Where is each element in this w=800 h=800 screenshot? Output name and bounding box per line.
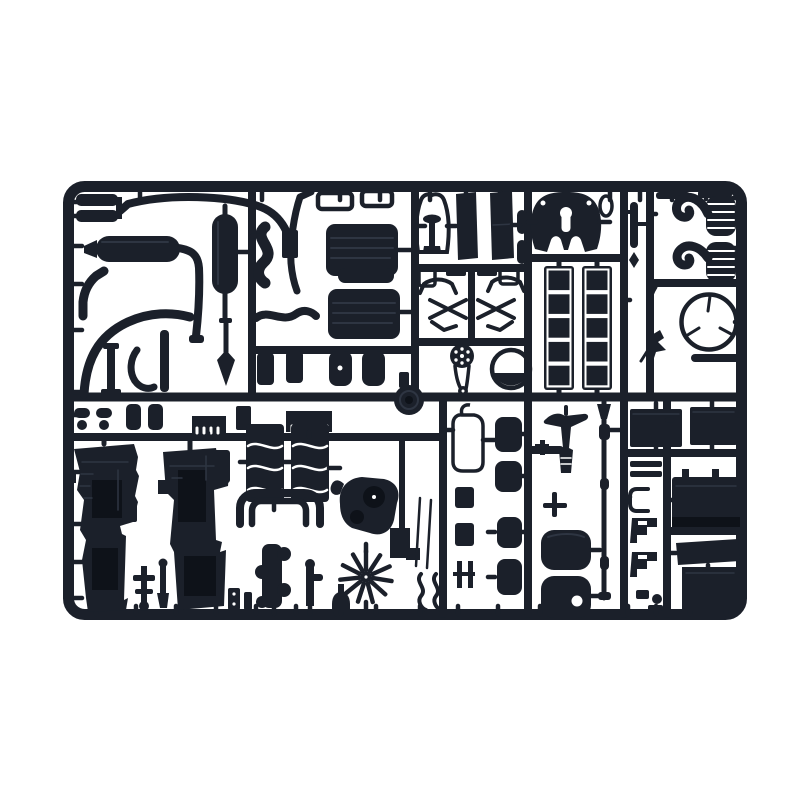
toolbox-with-lid (667, 539, 740, 611)
air-tank-pair (541, 530, 591, 618)
step-bracket-pair (630, 518, 657, 577)
battery-crate-left (544, 266, 574, 390)
suspension-linkage-set (419, 266, 524, 340)
c-bracket (630, 489, 648, 511)
gear-lever (641, 330, 666, 361)
small-square-pair (455, 487, 474, 546)
pipe-hook (131, 350, 154, 388)
cross-fitting (543, 492, 567, 517)
battery-crate-right (582, 266, 612, 390)
seat-base (338, 268, 394, 283)
s-bracket-pair (419, 574, 441, 610)
elbow-pipe (83, 271, 104, 316)
fifth-wheel-coupling (531, 192, 601, 252)
hanger-bracket (544, 407, 588, 473)
diagonal-pipe (291, 192, 311, 291)
mudguard-pad-column (488, 417, 528, 595)
sprue-photo (0, 0, 800, 800)
exhaust-stack-pair (676, 196, 736, 282)
vertical-strip (160, 330, 169, 392)
storage-box-pair (630, 401, 737, 453)
arrow-rod (217, 318, 235, 386)
towing-ring (600, 196, 612, 216)
bar-pair (630, 461, 662, 477)
timing-cover (331, 477, 399, 534)
exhaust-manifold (255, 544, 291, 608)
small-air-tank-pair (329, 351, 385, 386)
steering-wheel (682, 295, 737, 350)
exhaust-stack-lower (677, 242, 736, 282)
dagger-part (157, 559, 169, 609)
engine-block-half-right (158, 437, 230, 610)
small-fitting-a (399, 372, 409, 388)
faucet-pipe (305, 559, 323, 606)
rail-part (453, 561, 475, 588)
photo-canvas (0, 0, 800, 800)
exhaust-stack-upper (676, 196, 736, 236)
cab-panel-pair (456, 191, 514, 260)
small-silencer-pair (76, 194, 122, 222)
section-fifth-wheel (531, 192, 650, 397)
vertical-muffler (212, 206, 238, 320)
mud-flap-pair (257, 351, 303, 385)
sprue (66, 186, 744, 618)
battery-crate-pair (544, 258, 612, 397)
support-stand (101, 343, 121, 395)
mirror-wire-frame (453, 405, 483, 471)
seat-cushion-lower (328, 289, 400, 339)
pulley-with-belt (450, 344, 474, 396)
wavy-pipe (256, 311, 316, 318)
main-muffler (84, 236, 204, 343)
battery-box (672, 469, 744, 527)
pedestal-part (423, 215, 441, 253)
comb-part (192, 416, 226, 433)
mushroom-part (332, 584, 350, 612)
hub-disc (394, 385, 424, 415)
